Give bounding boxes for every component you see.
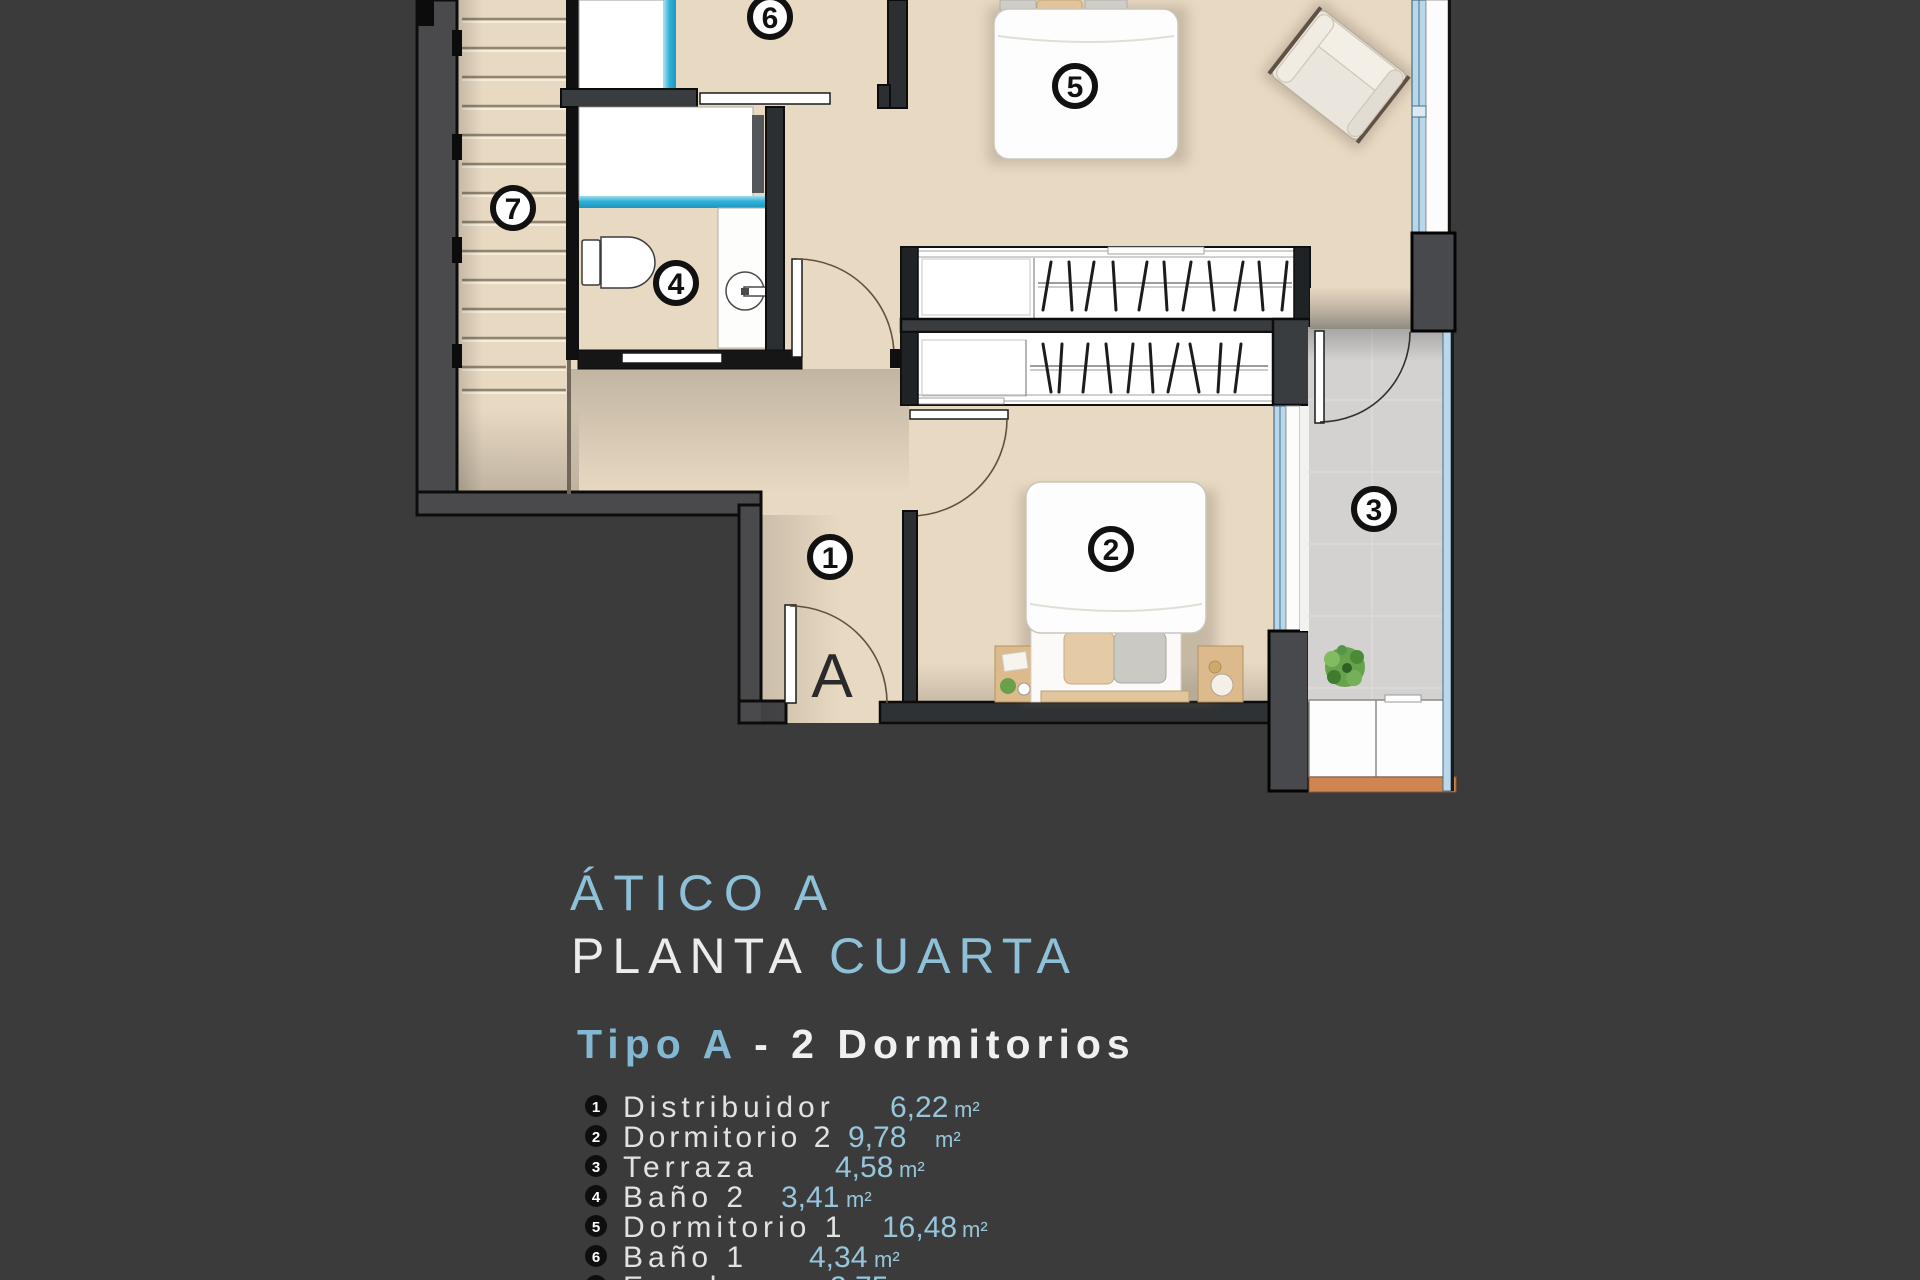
svg-text:Baño 2: Baño 2 (623, 1181, 748, 1214)
svg-text:PLANTA CUARTA: PLANTA CUARTA (571, 928, 1078, 984)
svg-text:Dormitorio 2: Dormitorio 2 (623, 1121, 834, 1154)
svg-text:2: 2 (1103, 534, 1120, 567)
svg-text:4,58: 4,58 (835, 1151, 893, 1184)
svg-text:m²: m² (846, 1187, 872, 1212)
svg-text:6: 6 (592, 1249, 600, 1266)
svg-text:6,22: 6,22 (890, 1091, 948, 1124)
svg-text:ÁTICO A: ÁTICO A (570, 865, 837, 921)
svg-text:m²: m² (954, 1097, 980, 1122)
svg-text:A: A (811, 642, 853, 711)
svg-text:m²: m² (962, 1217, 988, 1242)
svg-text:Tipo A - 2 Dormitorios: Tipo A - 2 Dormitorios (577, 1021, 1136, 1067)
svg-text:1: 1 (822, 542, 839, 575)
svg-text:16,48: 16,48 (882, 1211, 957, 1244)
svg-text:m²: m² (935, 1127, 961, 1152)
svg-text:1: 1 (592, 1099, 600, 1116)
svg-text:4,34: 4,34 (809, 1241, 867, 1274)
svg-text:Escalera: Escalera (623, 1271, 780, 1280)
svg-text:3: 3 (592, 1159, 600, 1176)
svg-text:Distribuidor: Distribuidor (623, 1091, 835, 1124)
svg-text:m²: m² (874, 1247, 900, 1272)
svg-text:6: 6 (762, 2, 779, 35)
svg-text:3: 3 (1366, 494, 1383, 527)
svg-text:3,41: 3,41 (781, 1181, 839, 1214)
svg-text:5: 5 (1067, 71, 1084, 104)
svg-text:7: 7 (505, 193, 522, 226)
svg-text:m²: m² (899, 1157, 925, 1182)
svg-text:Terraza: Terraza (623, 1151, 758, 1184)
svg-text:4: 4 (592, 1189, 601, 1206)
svg-text:Dormitorio 1: Dormitorio 1 (623, 1211, 846, 1244)
svg-text:3,75: 3,75 (830, 1271, 888, 1280)
svg-text:2: 2 (592, 1129, 600, 1146)
svg-text:4: 4 (668, 268, 685, 301)
svg-text:Baño 1: Baño 1 (623, 1241, 748, 1274)
svg-text:5: 5 (592, 1219, 600, 1236)
svg-text:9,78: 9,78 (848, 1121, 906, 1154)
